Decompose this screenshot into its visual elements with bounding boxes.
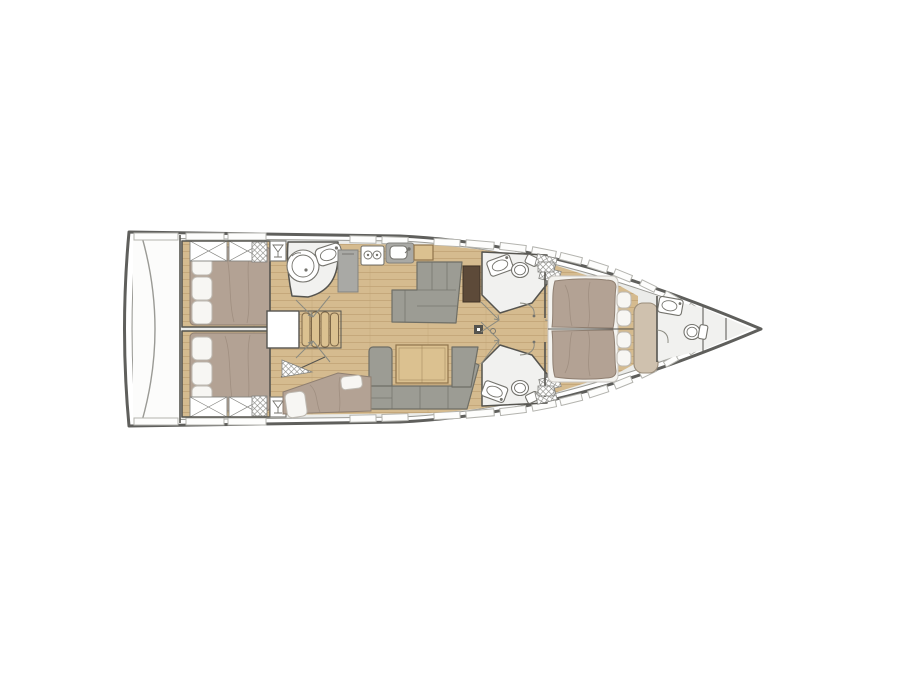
- floor-vent: [538, 386, 554, 396]
- floor-vent: [538, 262, 554, 272]
- pillow: [192, 301, 212, 324]
- hanging-locker-icon: [270, 241, 286, 261]
- yacht-floor-plan: [0, 0, 900, 675]
- dinette: [369, 345, 479, 409]
- pillow: [284, 391, 307, 419]
- owner-bed-starboard: [552, 330, 616, 379]
- washbasin-icon: [657, 296, 683, 316]
- engine-hatch: [267, 311, 299, 348]
- companionway-stairs: [300, 311, 341, 348]
- swim-platform: [133, 235, 180, 423]
- refrigerator: [338, 250, 358, 292]
- pillow: [192, 277, 212, 300]
- chart-table: [463, 266, 480, 302]
- pillow: [340, 375, 362, 390]
- transom-deck: [133, 236, 180, 422]
- louvered-locker: [252, 242, 267, 262]
- owner-bed-port: [552, 279, 616, 328]
- galley-sink-icon: [386, 243, 414, 263]
- pillow: [192, 362, 212, 385]
- pillow: [192, 337, 212, 360]
- shower-icon: [287, 250, 319, 282]
- bench-seat: [634, 303, 658, 373]
- stove-icon: [361, 246, 384, 265]
- toilet-icon: [684, 324, 708, 339]
- louvered-locker: [252, 396, 267, 416]
- galley-counter: [414, 245, 433, 260]
